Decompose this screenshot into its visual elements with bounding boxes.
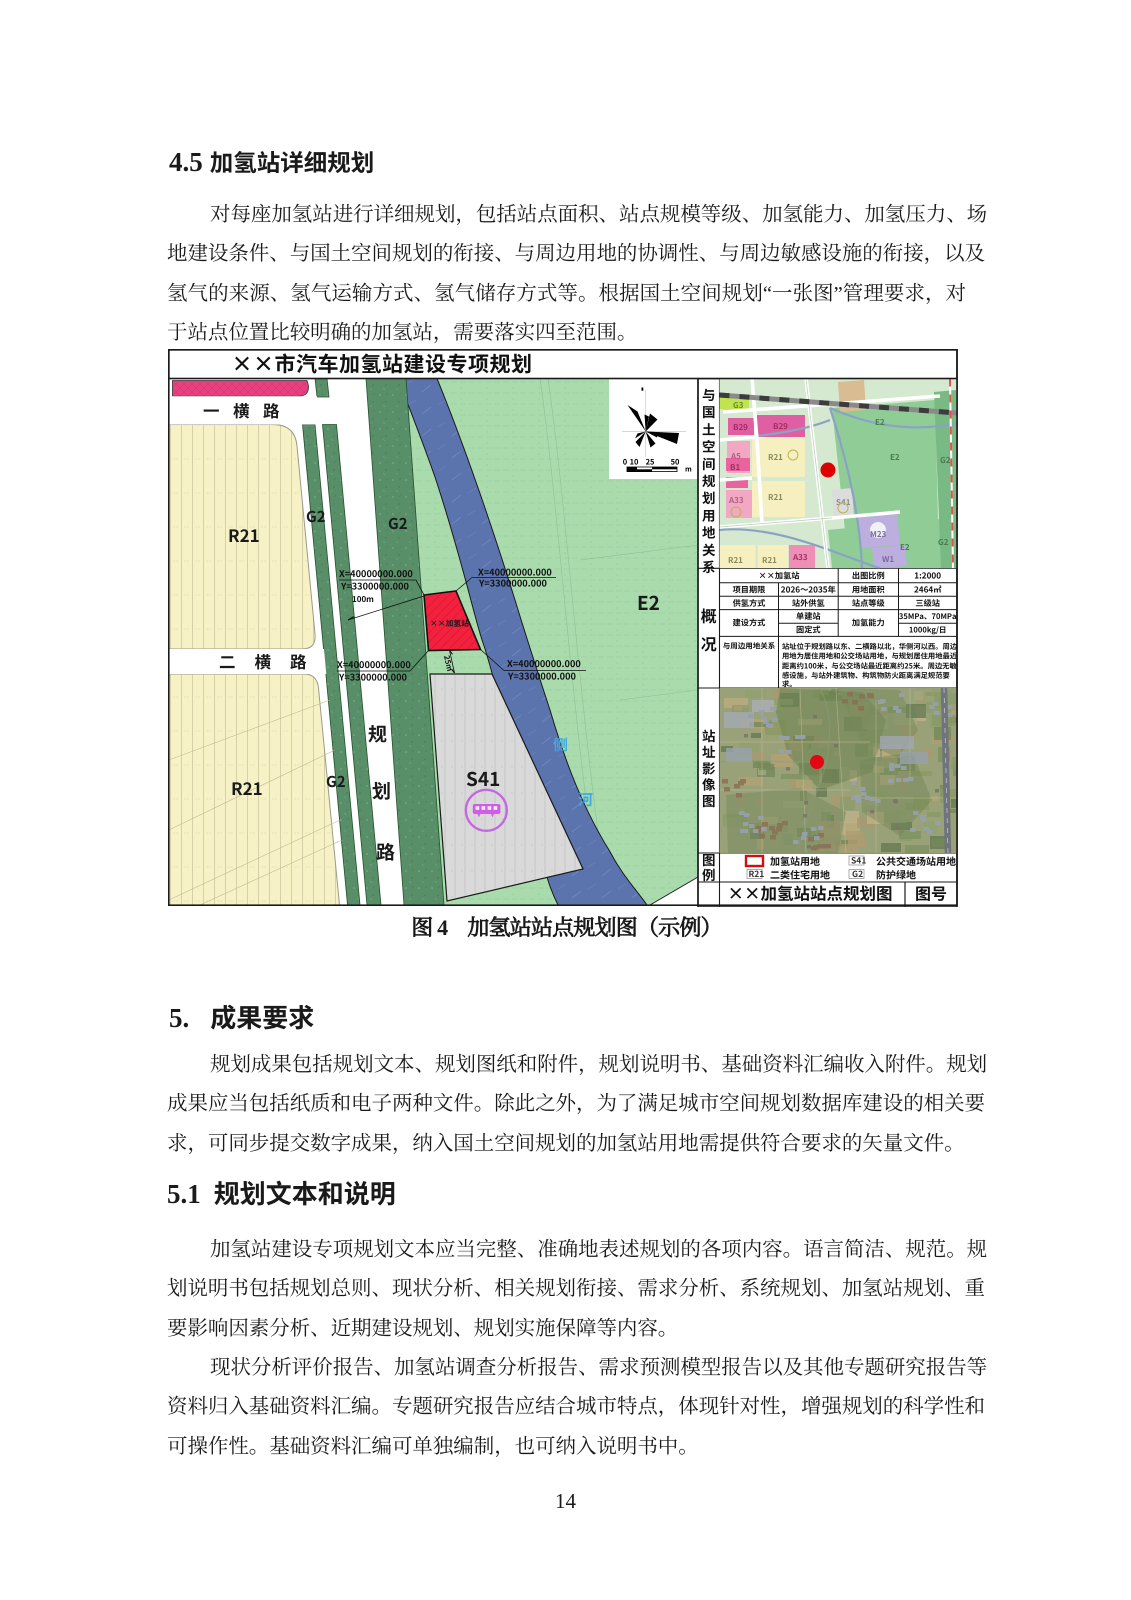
svg-text:单建站: 单建站: [796, 610, 821, 622]
svg-text:与周边用地关系: 与周边用地关系: [723, 641, 776, 652]
svg-text:××加氢站站点规划图: ××加氢站站点规划图: [728, 881, 893, 905]
svg-text:A5: A5: [730, 451, 741, 462]
svg-text:100m: 100m: [352, 594, 374, 605]
svg-text:G2: G2: [326, 771, 346, 792]
svg-text:G2: G2: [938, 537, 949, 548]
svg-text:例: 例: [702, 864, 716, 884]
svg-text:××市汽车加氢站建设专项规划: ××市汽车加氢站建设专项规划: [232, 349, 533, 379]
svg-text:G3: G3: [733, 400, 744, 411]
svg-text:三级站: 三级站: [915, 597, 940, 609]
svg-text:感设施，与站外建筑物、构筑物防火距离满足规范要: 感设施，与站外建筑物、构筑物防火距离满足规范要: [782, 671, 950, 681]
svg-text:求。: 求。: [782, 679, 797, 689]
svg-text:W1: W1: [882, 554, 894, 565]
svg-text:固定式: 固定式: [796, 624, 821, 636]
svg-text:用地面积: 用地面积: [852, 584, 885, 596]
svg-text:S41: S41: [851, 855, 866, 867]
svg-text:建设方式: 建设方式: [733, 617, 766, 629]
svg-text:G2: G2: [940, 455, 951, 466]
svg-text:河: 河: [578, 789, 593, 810]
svg-text:50: 50: [671, 457, 680, 468]
svg-text:出图比例: 出图比例: [852, 570, 885, 582]
svg-text:二类住宅用地: 二类住宅用地: [770, 867, 830, 882]
svg-text:R21: R21: [762, 555, 777, 566]
svg-text:站外供氢: 站外供氢: [792, 597, 826, 609]
svg-text:0: 0: [623, 457, 628, 468]
svg-text:况: 况: [701, 631, 717, 655]
svg-text:Y=3300000.000: Y=3300000.000: [338, 670, 407, 684]
svg-text:M23: M23: [870, 529, 887, 540]
svg-text:二横路: 二横路: [219, 649, 326, 673]
svg-text:1000kg/日: 1000kg/日: [909, 625, 947, 636]
svg-text:R21: R21: [231, 775, 263, 800]
svg-text:R21: R21: [228, 522, 260, 547]
svg-text:2464㎡: 2464㎡: [914, 584, 942, 596]
svg-text:侧: 侧: [553, 734, 568, 755]
svg-text:G2: G2: [306, 506, 326, 527]
svg-text:概: 概: [701, 603, 717, 627]
svg-text:E2: E2: [637, 589, 660, 616]
svg-text:S41: S41: [466, 765, 500, 792]
svg-text:R21: R21: [768, 492, 783, 503]
svg-text:××加氢站: ××加氢站: [759, 570, 800, 582]
svg-text:35MPa、70MPa: 35MPa、70MPa: [899, 611, 957, 622]
svg-text:E2: E2: [890, 452, 900, 463]
svg-text:B29: B29: [773, 421, 788, 432]
svg-text:G2: G2: [852, 868, 863, 880]
svg-text:防护绿地: 防护绿地: [876, 867, 916, 882]
svg-text:2026～2035年: 2026～2035年: [781, 584, 836, 596]
svg-text:E2: E2: [900, 542, 910, 553]
svg-text:1:2000: 1:2000: [914, 570, 941, 582]
svg-text:供氢方式: 供氢方式: [733, 597, 766, 609]
svg-text:一横路: 一横路: [203, 398, 293, 422]
svg-text:图: 图: [702, 790, 716, 810]
svg-text:R21: R21: [728, 555, 743, 566]
svg-text:用地为居住用地和公交场站用地，与规划居住用地最近: 用地为居住用地和公交场站用地，与规划居住用地最近: [782, 652, 958, 662]
svg-text:规: 规: [368, 720, 387, 747]
svg-text:R21: R21: [768, 452, 783, 463]
svg-text:划: 划: [372, 777, 391, 804]
svg-text:项目期限: 项目期限: [733, 584, 766, 596]
svg-text:距离约100米，与公交场站最近距离约25米。周边无敏: 距离约100米，与公交场站最近距离约25米。周边无敏: [782, 661, 957, 671]
svg-text:加氢能力: 加氢能力: [852, 617, 885, 629]
svg-text:路: 路: [376, 838, 395, 865]
svg-text:站点等级: 站点等级: [852, 597, 886, 609]
svg-text:A33: A33: [728, 495, 744, 506]
svg-text:25: 25: [646, 457, 655, 468]
svg-text:B29: B29: [733, 422, 748, 433]
svg-text:系: 系: [702, 556, 716, 576]
svg-text:B1: B1: [730, 462, 740, 473]
svg-text:Y=3300000.000: Y=3300000.000: [340, 579, 409, 593]
svg-text:10: 10: [630, 457, 639, 468]
svg-text:m: m: [685, 465, 692, 475]
svg-text:R21: R21: [749, 868, 765, 880]
svg-text:站址位于规划路以东、二横路以北，华侧河以西。周边: 站址位于规划路以东、二横路以北，华侧河以西。周边: [782, 642, 958, 652]
svg-text:××加氢站: ××加氢站: [430, 618, 469, 629]
svg-text:A33: A33: [792, 552, 808, 563]
svg-text:G2: G2: [388, 513, 408, 534]
svg-text:图号: 图号: [915, 881, 947, 905]
svg-text:E2: E2: [875, 417, 885, 428]
